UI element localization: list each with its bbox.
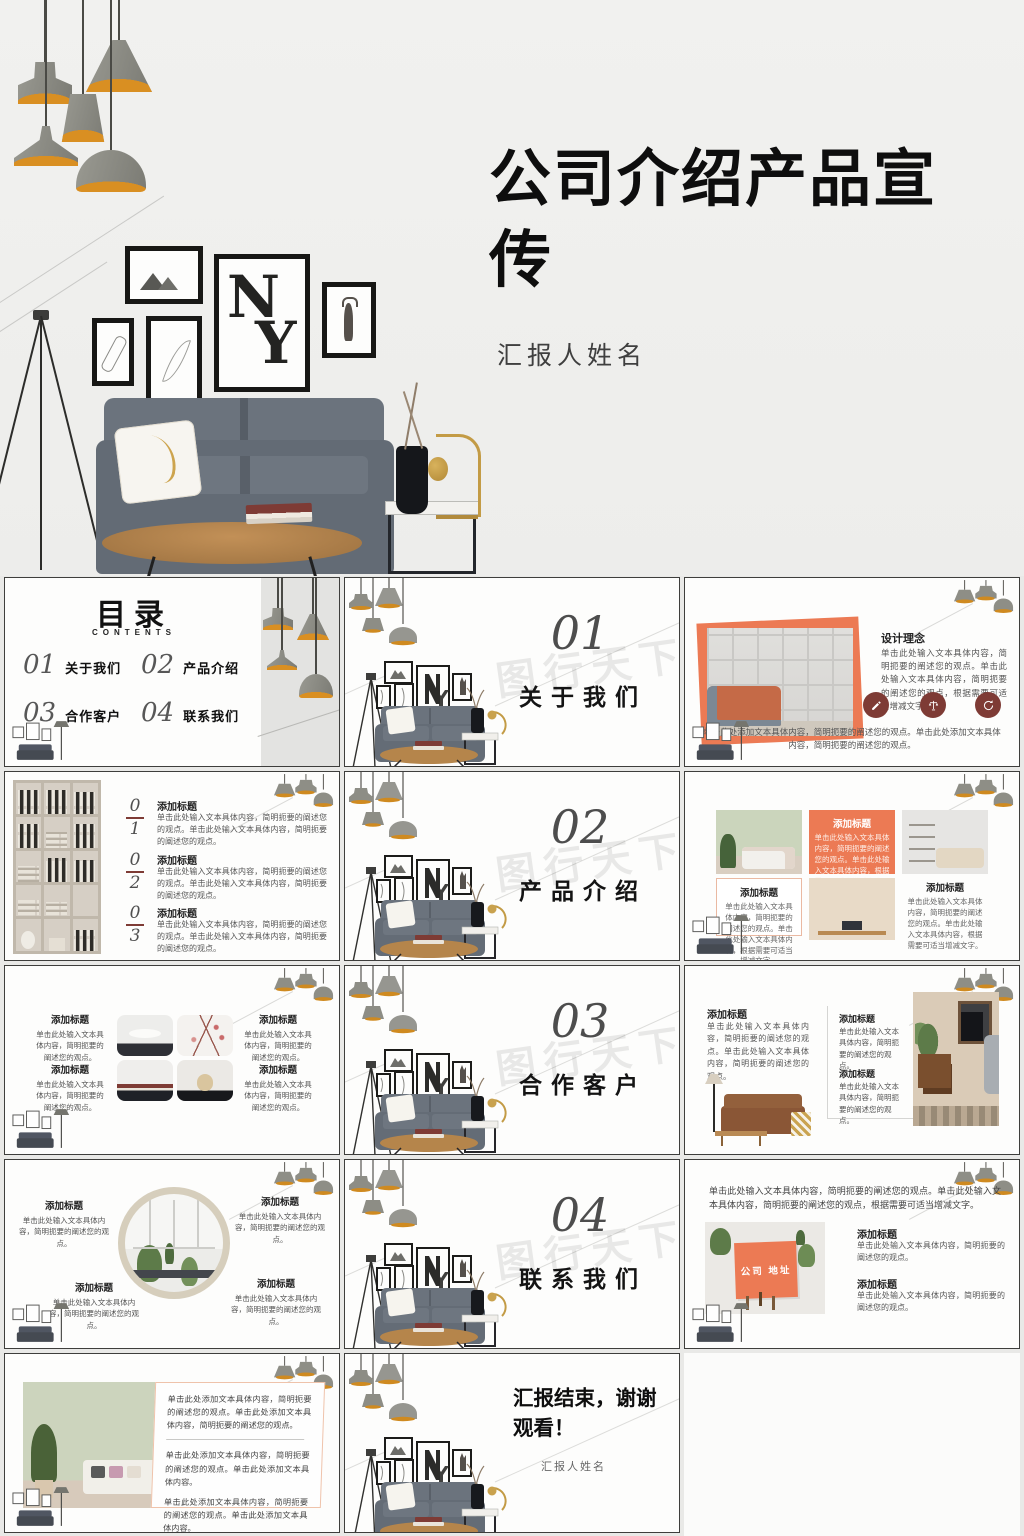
throw-pillow xyxy=(114,419,203,504)
item-title: 添加标题 xyxy=(157,905,197,920)
text-block: 添加标题 单击此处输入文本具体内容，简明扼要的阐述您的观点。 xyxy=(243,1062,313,1113)
number-digit: 0 xyxy=(130,796,141,816)
block-body: 单击此处输入文本具体内容，简明扼要的阐述您的观点。 xyxy=(17,1215,111,1249)
summary-panel: 单击此处添加文本具体内容，简明扼要的阐述您的观点。单击此处添加文本具体内容，简明… xyxy=(151,1382,325,1508)
scales-icon xyxy=(920,692,946,718)
block-title: 添加标题 xyxy=(243,1062,313,1076)
plants xyxy=(137,1245,162,1282)
pen-icon xyxy=(863,692,889,718)
item-body: 单击此处输入文本具体内容，简明扼要的阐述您的观点。单击此处输入文本具体内容，简明… xyxy=(157,866,327,902)
books-on-table xyxy=(246,503,313,524)
slide-section-03: 图行天下 03 合作客户 xyxy=(344,965,680,1155)
number-digit: 2 xyxy=(130,873,141,893)
toc-item-number: 01 xyxy=(23,650,56,680)
toc-item-number: 04 xyxy=(141,698,174,728)
empty-area xyxy=(684,1353,1020,1536)
toc-item: 04联系我们 xyxy=(141,698,239,728)
desk-photo xyxy=(809,878,895,940)
slide-partners: 添加标题 单击此处输入文本具体内容，简明扼要的阐述您的观点。单击此处输入文本具体… xyxy=(684,965,1020,1155)
living-room-illustration xyxy=(345,1354,680,1533)
pendant-lamps-decal xyxy=(273,774,335,809)
sofa-sketch-decal xyxy=(11,719,73,764)
bookshelf-photo xyxy=(13,780,101,954)
feather-art-frame xyxy=(146,316,202,404)
slide-thanks: 汇报结束，谢谢观看！ 汇报人姓名 xyxy=(344,1353,680,1533)
sofa-edge xyxy=(984,1035,999,1094)
product-text: 添加标题 单击此处输入文本具体内容，简明扼要的阐述您的观点。单击此处输入文本具体… xyxy=(902,878,988,953)
coffee-table xyxy=(102,522,362,564)
section-title: 合作客户 xyxy=(501,1066,665,1100)
divider-line xyxy=(166,1439,304,1440)
section-number: 04 xyxy=(515,1188,645,1242)
number-digit: 0 xyxy=(130,850,141,870)
toc-item-label: 产品介绍 xyxy=(183,661,239,676)
block-body: 单击此处输入文本具体内容，简明扼要的阐述您的观点。 xyxy=(839,1081,903,1126)
side-table xyxy=(388,512,476,574)
item-body: 单击此处输入文本具体内容，简明扼要的阐述您的观点。单击此处输入文本具体内容，简明… xyxy=(157,919,327,955)
slide-numbered-points: 0 1 添加标题 单击此处输入文本具体内容，简明扼要的阐述您的观点。单击此处输入… xyxy=(4,771,340,961)
product-column: 添加标题 单击此处输入文本具体内容，简明扼要的阐述您的观点。单击此处输入文本具体… xyxy=(902,810,988,942)
item-body: 单击此处输入文本具体内容，简明扼要的阐述您的观点。单击此处输入文本具体内容，简明… xyxy=(157,812,327,848)
side-stool xyxy=(791,1112,811,1136)
block-title: 添加标题 xyxy=(707,1006,747,1021)
pendant-lamps-decal xyxy=(953,774,1015,809)
text-block: 添加标题 单击此处输入文本具体内容，简明扼要的阐述您的观点。 xyxy=(229,1276,323,1327)
item-number: 0 3 xyxy=(123,905,147,945)
block-title: 添加标题 xyxy=(233,1194,327,1208)
toc-item: 01关于我们 xyxy=(23,650,121,680)
slide-contents: 目录 CONTENTS 01关于我们 02产品介绍 03合作客户 04联系我们 xyxy=(4,577,340,767)
toc-item-label: 合作客户 xyxy=(65,709,121,724)
slide-about-us: 设计理念 单击此处输入文本具体内容，简明扼要的阐述您的观点。单击此处输入文本具体… xyxy=(684,577,1020,767)
section-number: 03 xyxy=(515,994,645,1048)
address-board: 公司 地址 xyxy=(734,1241,798,1299)
pendant-lamp xyxy=(299,578,333,698)
ny-poster-frame: N Y xyxy=(214,254,310,392)
tripod-lamp-head xyxy=(33,310,49,320)
slide-section-01: 图行天下 01 关于我们 xyxy=(344,577,680,767)
section-title: 产品介绍 xyxy=(501,872,665,906)
text-block: 添加标题 单击此处输入文本具体内容，简明扼要的阐述您的观点。 xyxy=(17,1198,111,1249)
slide-products: 添加标题 单击此处输入文本具体内容，简明扼要的阐述您的观点。单击此处输入文本具体… xyxy=(684,771,1020,961)
slide-mirror: 添加标题 单击此处输入文本具体内容，简明扼要的阐述您的观点。 添加标题 单击此处… xyxy=(4,1159,340,1349)
block-body: 单击此处输入文本具体内容，简明扼要的阐述您的观点。 xyxy=(229,1293,323,1327)
cover-title: 公司介绍产品宣传 xyxy=(489,140,949,301)
sofa-sketch-decal xyxy=(691,1301,753,1346)
block-title: 设计理念 xyxy=(881,630,925,646)
shelf-room-photo xyxy=(902,810,988,874)
refresh-icon xyxy=(975,692,1001,718)
slide-photo-grid: 添加标题 单击此处输入文本具体内容，简明扼要的阐述您的观点。 添加标题 单击此处… xyxy=(4,965,340,1155)
rug xyxy=(913,1106,999,1126)
block-body: 单击此处输入文本具体内容，简明扼要的阐述您的观点。 xyxy=(839,1026,903,1071)
item-number: 0 1 xyxy=(123,798,147,838)
number-digit: 3 xyxy=(130,926,141,946)
block-title: 添加标题 xyxy=(47,1280,141,1294)
summary-paragraph: 单击此处添加文本具体内容，简明扼要的阐述您的观点。单击此处添加文本具体内容，简明… xyxy=(166,1393,311,1432)
card-body: 单击此处输入文本具体内容，简明扼要的阐述您的观点。单击此处输入文本具体内容，根据… xyxy=(904,897,986,951)
pendant-lamp xyxy=(267,578,297,670)
pendant-lamp xyxy=(76,0,146,192)
block-title: 添加标题 xyxy=(857,1226,897,1241)
section-title: 联系我们 xyxy=(501,1260,665,1294)
slide-contact: 单击此处输入文本具体内容，简明扼要的阐述您的观点。单击此处输入文本具体内容，简明… xyxy=(684,1159,1020,1349)
plant xyxy=(915,1019,941,1057)
block-title: 添加标题 xyxy=(35,1012,105,1026)
section-number: 02 xyxy=(515,800,645,854)
text-block: 添加标题 单击此处输入文本具体内容，简明扼要的阐述您的观点。 xyxy=(35,1012,105,1063)
vase-with-branches xyxy=(396,446,428,514)
sofa-sketch-decal xyxy=(691,719,753,764)
block-body: 单击此处输入文本具体内容，简明扼要的阐述您的观点。 xyxy=(857,1240,1005,1265)
slide-section-02: 图行天下 02 产品介绍 xyxy=(344,771,680,961)
green-room-photo xyxy=(716,810,802,874)
text-block: 添加标题 单击此处输入文本具体内容，简明扼要的阐述您的观点。 xyxy=(243,1012,313,1063)
coffee-table xyxy=(715,1131,767,1136)
number-digit: 1 xyxy=(130,819,141,839)
accent-card: 添加标题 单击此处输入文本具体内容，简明扼要的阐述您的观点。单击此处输入文本具体… xyxy=(809,810,895,874)
product-column: 添加标题 单击此处输入文本具体内容，简明扼要的阐述您的观点。单击此处输入文本具体… xyxy=(809,810,895,942)
block-title: 添加标题 xyxy=(17,1198,111,1212)
cover-subtitle: 汇报人姓名 xyxy=(497,336,647,372)
block-title: 添加标题 xyxy=(229,1276,323,1290)
section-number: 01 xyxy=(515,606,645,660)
block-title: 添加标题 xyxy=(857,1276,897,1291)
decor-photo-tile xyxy=(117,1015,173,1056)
pendant-lamps-decal xyxy=(953,580,1015,615)
board-text: 公司 地址 xyxy=(740,1262,791,1278)
vase-photo-tile xyxy=(177,1060,233,1101)
cover-slide: N Y 公司介绍产品宣传 汇报人姓名 xyxy=(0,0,1024,576)
lamp-photo-strip xyxy=(261,578,339,766)
gold-table-lamp xyxy=(436,434,481,517)
thanks-subtitle: 汇报人姓名 xyxy=(541,1458,606,1474)
books-photo-tile xyxy=(117,1060,173,1101)
mountain-art-frame xyxy=(125,246,203,304)
item-number: 0 2 xyxy=(123,852,147,892)
block-body: 单击此处输入文本具体内容，简明扼要的阐述您的观点。 xyxy=(233,1211,327,1245)
item-title: 添加标题 xyxy=(157,852,197,867)
slide-section-04: 图行天下 04 联系我们 xyxy=(344,1159,680,1349)
number-digit: 0 xyxy=(130,903,141,923)
summary-paragraph: 单击此处添加文本具体内容，简明扼要的阐述您的观点。单击此处添加文本具体内容。 xyxy=(164,1449,309,1488)
section-title: 关于我们 xyxy=(501,678,665,712)
block-title: 添加标题 xyxy=(839,1012,875,1025)
block-body: 单击此处输入文本具体内容，简明扼要的阐述您的观点。 xyxy=(243,1029,313,1063)
toc-item-number: 02 xyxy=(141,650,174,680)
slide-summary: 单击此处添加文本具体内容，简明扼要的阐述您的观点。单击此处添加文本具体内容，简明… xyxy=(4,1353,340,1533)
block-body: 单击此处输入文本具体内容，简明扼要的阐述您的观点。 xyxy=(857,1290,1005,1315)
sofa-sketch-decal xyxy=(11,1485,73,1530)
sofa-sketch-decal xyxy=(691,913,753,958)
block-body: 单击此处输入文本具体内容，简明扼要的阐述您的观点。 xyxy=(243,1079,313,1113)
deer-art-frame xyxy=(322,282,376,358)
sofa-sketch-decal xyxy=(11,1107,73,1152)
card-title: 添加标题 xyxy=(814,816,890,830)
thanks-title: 汇报结束，谢谢观看！ xyxy=(513,1384,669,1443)
card-title: 添加标题 xyxy=(722,885,796,899)
pendant-lamps-decal xyxy=(273,1162,335,1197)
card-title: 添加标题 xyxy=(904,880,986,894)
block-title: 添加标题 xyxy=(243,1012,313,1026)
poster-letter: Y xyxy=(255,309,296,377)
text-block: 添加标题 单击此处输入文本具体内容，简明扼要的阐述您的观点。 xyxy=(233,1194,327,1245)
blossom-photo-tile xyxy=(177,1015,233,1056)
ppt-template-preview: N Y 公司介绍产品宣传 汇报人姓名 目录 CONTENTS 01关于我们 xyxy=(0,0,1024,1536)
pendant-lamp xyxy=(14,0,78,166)
sofa-sketch-decal xyxy=(11,1301,73,1346)
toc-subtitle: CONTENTS xyxy=(5,628,263,637)
toc-item: 02产品介绍 xyxy=(141,650,239,680)
toc-item-label: 关于我们 xyxy=(65,661,121,676)
block-title: 添加标题 xyxy=(35,1062,105,1076)
block-body: 单击此处输入文本具体内容，简明扼要的阐述您的观点。 xyxy=(35,1029,105,1063)
tripod-floor-lamp xyxy=(0,310,104,576)
summary-paragraph: 单击此处添加文本具体内容，简明扼要的阐述您的观点。单击此处添加文本具体内容。 xyxy=(163,1496,308,1533)
toc-item-label: 联系我们 xyxy=(183,709,239,724)
pendant-lamps-decal xyxy=(273,968,335,1003)
block-title: 添加标题 xyxy=(839,1067,875,1080)
text-block: 添加标题 单击此处输入文本具体内容，简明扼要的阐述您的观点。 xyxy=(35,1062,105,1113)
divider-line xyxy=(827,1006,828,1118)
intro-text: 单击此处输入文本具体内容，简明扼要的阐述您的观点。单击此处输入文本具体内容，简明… xyxy=(709,1184,1001,1213)
living-room-photo xyxy=(913,992,999,1126)
item-title: 添加标题 xyxy=(157,798,197,813)
